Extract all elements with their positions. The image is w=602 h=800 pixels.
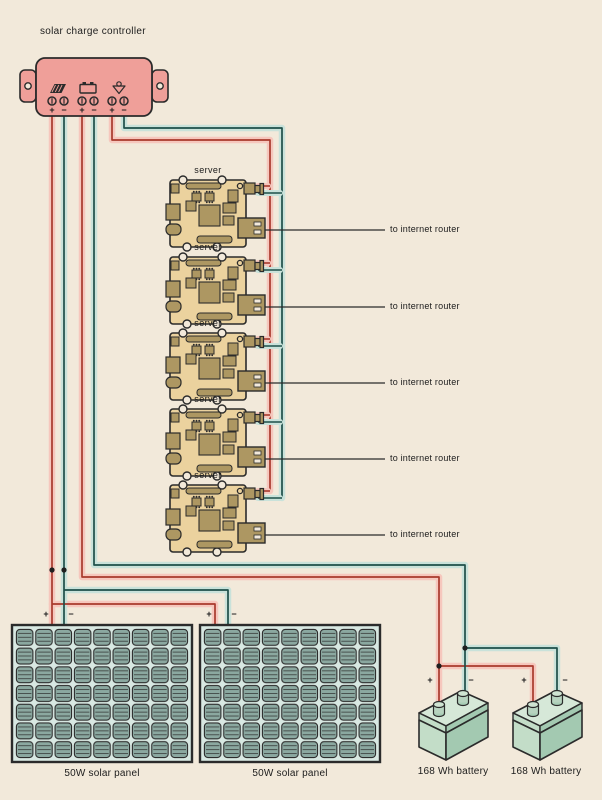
- battery-positive-wire: [82, 116, 439, 707]
- server-board-3: [166, 329, 385, 404]
- router-label: to internet router: [390, 378, 460, 387]
- server-label: server: [194, 395, 221, 404]
- battery-label: 168 Wh battery: [511, 767, 582, 777]
- solar-server-wiring-diagram: solar charge controller server server se…: [0, 0, 602, 800]
- server-board-2: [166, 253, 385, 328]
- battery-negative-branch-wire: [465, 648, 557, 694]
- mounting-hole: [157, 83, 163, 89]
- server-label: server: [194, 243, 221, 252]
- server-label: server: [194, 166, 221, 175]
- solar-panel-1: [12, 625, 192, 762]
- polarity-sign: −: [68, 610, 73, 619]
- battery-2: [513, 691, 582, 761]
- wires: [52, 116, 557, 707]
- terminal-sign: +: [79, 106, 84, 115]
- polarity-sign: +: [427, 676, 432, 685]
- solar-panel-2: [200, 625, 380, 762]
- server-board-1: [166, 176, 385, 251]
- polarity-sign: +: [43, 610, 48, 619]
- terminal-sign: −: [121, 106, 126, 115]
- solar-panel-label: 50W solar panel: [252, 769, 327, 779]
- battery-1: [419, 691, 488, 761]
- polarity-sign: −: [562, 676, 567, 685]
- router-label: to internet router: [390, 454, 460, 463]
- terminal-sign: +: [49, 106, 54, 115]
- terminal-sign: +: [109, 106, 114, 115]
- server-label: server: [194, 471, 221, 480]
- server-board-4: [166, 405, 385, 480]
- polarity-sign: −: [468, 676, 473, 685]
- terminal-sign: −: [61, 106, 66, 115]
- router-label: to internet router: [390, 225, 460, 234]
- solar-panel-label: 50W solar panel: [64, 769, 139, 779]
- mounting-hole: [25, 83, 31, 89]
- server-board-5: [166, 481, 385, 556]
- polarity-sign: +: [521, 676, 526, 685]
- battery-label: 168 Wh battery: [418, 767, 489, 777]
- polarity-sign: +: [206, 610, 211, 619]
- router-label: to internet router: [390, 302, 460, 311]
- diagram-title: solar charge controller: [40, 27, 146, 37]
- server-label: server: [194, 319, 221, 328]
- router-label: to internet router: [390, 530, 460, 539]
- diagram-canvas: [0, 0, 602, 800]
- terminal-sign: −: [91, 106, 96, 115]
- wire-glows: [52, 116, 557, 707]
- polarity-sign: −: [231, 610, 236, 619]
